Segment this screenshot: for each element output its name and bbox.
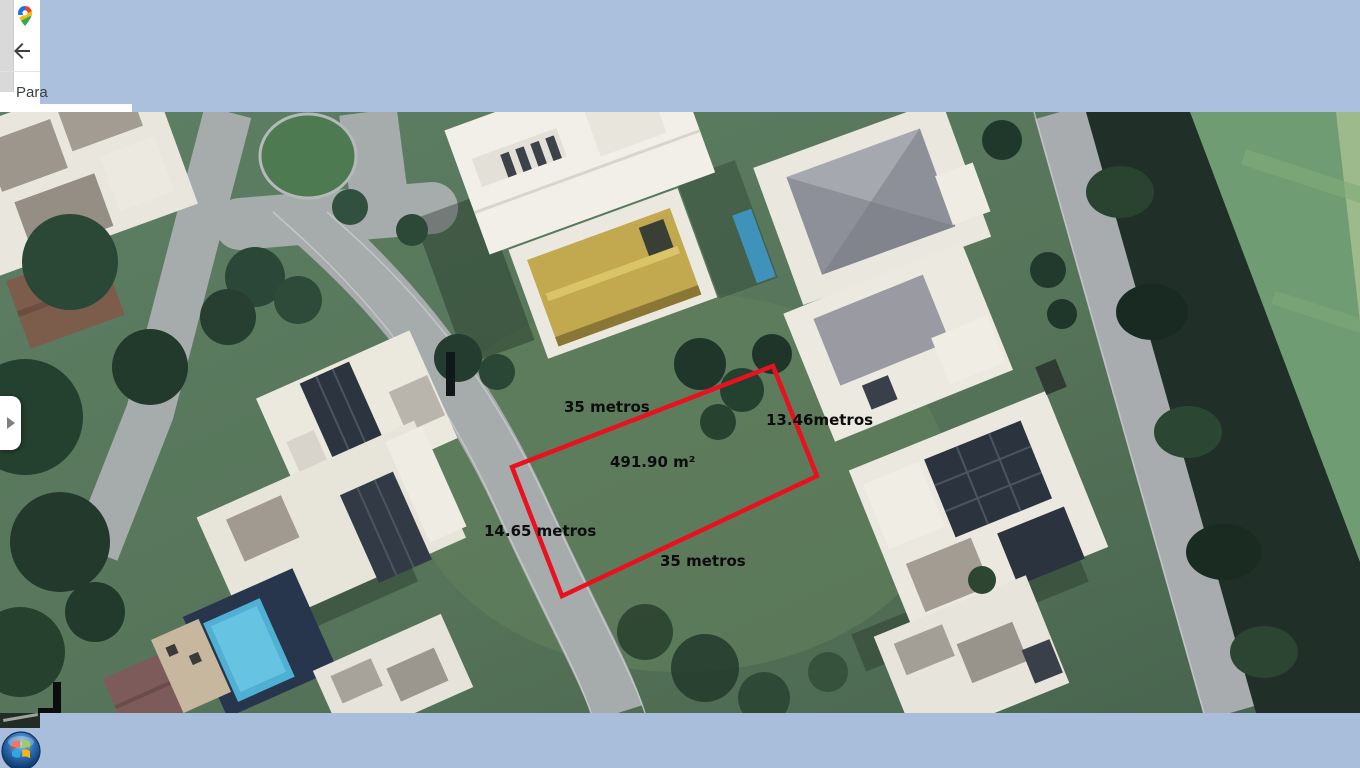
back-arrow-icon bbox=[10, 39, 34, 63]
windows-start-button[interactable] bbox=[1, 731, 41, 768]
taskbar bbox=[0, 713, 1360, 768]
measurement-label-left: 14.65 metros bbox=[484, 522, 596, 540]
measurement-label-right: 13.46metros bbox=[766, 411, 873, 429]
google-maps-pin-icon bbox=[18, 6, 32, 26]
chevron-right-icon bbox=[7, 417, 15, 429]
satellite-imagery[interactable] bbox=[0, 112, 1360, 713]
satellite-map[interactable]: 35 metros 13.46metros 491.90 m² 14.65 me… bbox=[0, 112, 1360, 713]
map-fragment bbox=[0, 713, 40, 728]
measurement-label-top: 35 metros bbox=[564, 398, 650, 416]
back-button[interactable] bbox=[9, 39, 35, 65]
top-cover-block bbox=[40, 0, 1360, 112]
measurement-label-bottom: 35 metros bbox=[660, 552, 746, 570]
panel-edge-strip bbox=[40, 104, 132, 112]
panel-text: Para bbox=[16, 84, 48, 101]
maps-side-panel-edge: Para bbox=[0, 0, 40, 112]
area-label: 491.90 m² bbox=[610, 453, 695, 471]
panel-divider bbox=[0, 71, 40, 72]
windows-start-orb-icon bbox=[1, 731, 41, 768]
side-panel-expand-button[interactable] bbox=[0, 396, 21, 450]
screenshot-root: 35 metros 13.46metros 491.90 m² 14.65 me… bbox=[0, 0, 1360, 768]
fragment-line bbox=[3, 713, 38, 722]
